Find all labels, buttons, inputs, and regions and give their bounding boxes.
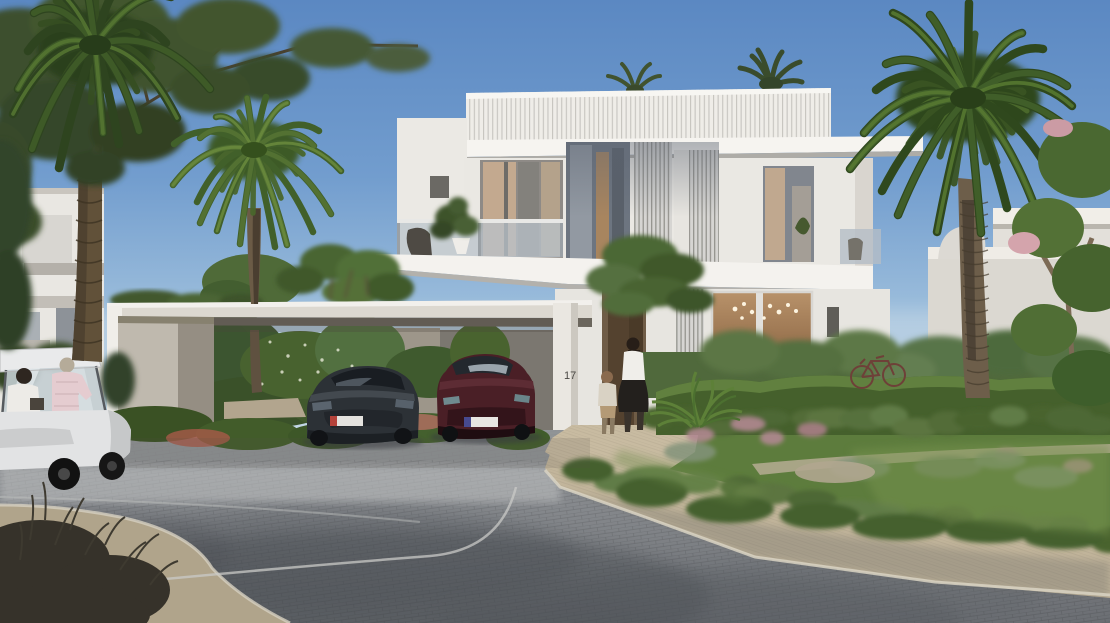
svg-text:17: 17	[564, 370, 576, 382]
